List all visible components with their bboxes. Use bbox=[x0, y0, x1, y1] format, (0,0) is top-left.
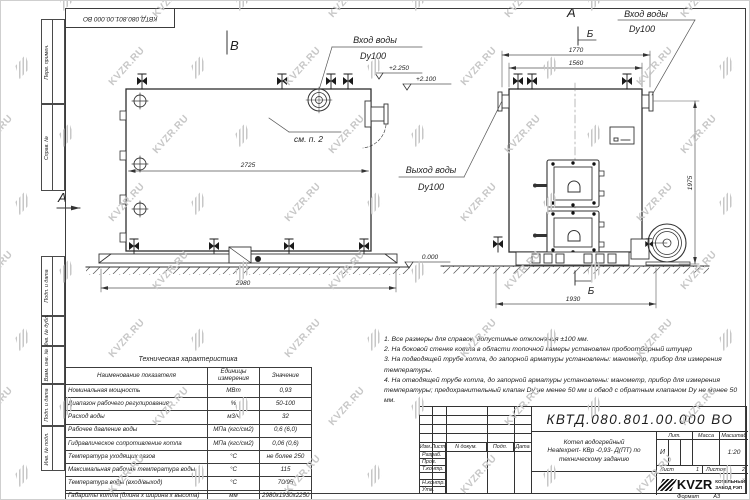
scale-value: 1:20 bbox=[720, 440, 748, 466]
row-nkontr: Н.контр. bbox=[420, 480, 446, 487]
company-logo: KVZR КОТЕЛЬНЫЙ ЗАВОД РЭП bbox=[657, 474, 748, 495]
table-row: Диапазон рабочего регулирования%50-100 bbox=[66, 398, 312, 411]
mass-value bbox=[693, 440, 720, 466]
margin-box-sprav-no: Справ. № bbox=[41, 104, 65, 191]
rev-col-ndocum: N докум. bbox=[446, 443, 487, 452]
table-cell: м3/ч bbox=[208, 411, 260, 424]
table-cell: 50-100 bbox=[260, 398, 312, 411]
sheets-cell: Листов2 bbox=[703, 466, 748, 474]
table-cell: Рабочее давление воды bbox=[66, 424, 208, 437]
table-cell: 0,93 bbox=[260, 385, 312, 398]
company-name: КОТЕЛЬНЫЙ ЗАВОД РЭП bbox=[715, 479, 745, 490]
tech-table: Наименование показателя Единицы измерени… bbox=[65, 367, 312, 500]
table-row: Максимальная рабочая температура воды°С1… bbox=[66, 464, 312, 477]
table-cell: °С bbox=[208, 464, 260, 477]
rev-col-data: Дата bbox=[514, 443, 532, 452]
rev-col-podp: Подп. bbox=[487, 443, 514, 452]
row-prov: Пров. bbox=[420, 459, 446, 466]
note-item: 3. На подводящей трубе котла, до запорно… bbox=[384, 355, 747, 375]
table-cell: Температура воды (вход/выход) bbox=[66, 477, 208, 490]
table-cell: МПа (кгс/см2) bbox=[208, 424, 260, 437]
col-header-name: Наименование показателя bbox=[66, 368, 208, 385]
table-cell: Температура уходящих газов bbox=[66, 450, 208, 463]
note-item: 2. На боковой стенке котла в области топ… bbox=[384, 345, 747, 355]
product-name: Котел водогрейный Heatexpert- КВр -0,93-… bbox=[532, 432, 657, 472]
table-cell: 0,06 (0,6) bbox=[260, 437, 312, 450]
notes: 1. Все размеры для справок, допустимые о… bbox=[384, 335, 747, 406]
table-cell: Расход воды bbox=[66, 411, 208, 424]
lit-value: И bbox=[657, 440, 669, 466]
scale-header: Масштаб bbox=[720, 432, 748, 440]
sheet: 2725 bbox=[0, 0, 750, 500]
table-cell: Диапазон рабочего регулирования bbox=[66, 398, 208, 411]
tech-table-title: Техническая характеристика bbox=[65, 356, 311, 363]
row-razrab: Разраб. bbox=[420, 452, 446, 459]
margin-box-podp-data-1: Подп. и дата bbox=[41, 256, 65, 316]
table-cell: МПа (кгс/см2) bbox=[208, 437, 260, 450]
margin-box-inv-dubl: Инв. № дубл. bbox=[41, 316, 65, 346]
row-blank bbox=[420, 473, 446, 480]
table-row: Рабочее давление водыМПа (кгс/см2)0,6 (6… bbox=[66, 424, 312, 437]
table-cell: МВт bbox=[208, 385, 260, 398]
kvzr-logo-icon bbox=[657, 479, 677, 491]
table-cell: 0,6 (6,0) bbox=[260, 424, 312, 437]
mass-header: Масса bbox=[693, 432, 720, 440]
rev-col-izm-list: Изм.Лист bbox=[420, 443, 446, 452]
row-tkontr: Т.контр. bbox=[420, 466, 446, 473]
tech-table-body: Номинальная мощностьМВт0,93Диапазон рабо… bbox=[66, 385, 312, 500]
table-row: Гидравлическое сопротивление котлаМПа (к… bbox=[66, 437, 312, 450]
margin-box-perv-primen: Перв. примен. bbox=[41, 19, 65, 104]
table-cell: Максимальная рабочая температура воды bbox=[66, 464, 208, 477]
table-row: Номинальная мощностьМВт0,93 bbox=[66, 385, 312, 398]
table-cell: Гидравлическое сопротивление котла bbox=[66, 437, 208, 450]
row-utv: Утв. bbox=[420, 487, 446, 493]
table-cell: 2980х1930х2250 bbox=[260, 490, 312, 500]
table-cell: °С bbox=[208, 450, 260, 463]
table-cell: Номинальная мощность bbox=[66, 385, 208, 398]
table-cell: 115 bbox=[260, 464, 312, 477]
table-row: Температура уходящих газов°Сне более 250 bbox=[66, 450, 312, 463]
sheet-cell: Лист1 bbox=[657, 466, 703, 474]
table-cell: 32 bbox=[260, 411, 312, 424]
margin-box-vzam-inv: Взам. инв. № bbox=[41, 346, 65, 384]
margin-box-podp-data-2: Подп. и дата bbox=[41, 384, 65, 426]
margin-box-inv-podl: Инв. № подл. bbox=[41, 426, 65, 471]
lit-header: Лит. bbox=[657, 432, 693, 440]
table-cell: °С bbox=[208, 477, 260, 490]
table-cell: % bbox=[208, 398, 260, 411]
title-block: Изм.Лист N докум. Подп. Дата Разраб. Про… bbox=[419, 406, 747, 494]
note-item: 4. На отводящей трубе котла, до запорной… bbox=[384, 376, 747, 407]
col-header-units: Единицы измерения bbox=[208, 368, 260, 385]
table-cell: мм bbox=[208, 490, 260, 500]
table-row: Расход водым3/ч32 bbox=[66, 411, 312, 424]
corner-stamp: КВТД.080.801.00.000 ВО bbox=[65, 8, 175, 28]
table-row: Габариты котла (длина х ширина х высота)… bbox=[66, 490, 312, 500]
table-cell: 70/95 bbox=[260, 477, 312, 490]
title-designation: КВТД.080.801.00.000 ВО bbox=[532, 407, 748, 432]
kvzr-logo-text: KVZR bbox=[677, 477, 712, 492]
table-cell: Габариты котла (длина х ширина х высота) bbox=[66, 490, 208, 500]
corner-stamp-text: КВТД.080.801.00.000 ВО bbox=[83, 15, 157, 22]
note-item: 1. Все размеры для справок, допустимые о… bbox=[384, 335, 747, 345]
col-header-value: Значение bbox=[260, 368, 312, 385]
table-cell: не более 250 bbox=[260, 450, 312, 463]
table-header-row: Наименование показателя Единицы измерени… bbox=[66, 368, 312, 385]
format-note: ФорматА3 bbox=[677, 494, 720, 500]
table-row: Температура воды (вход/выход)°С70/95 bbox=[66, 477, 312, 490]
